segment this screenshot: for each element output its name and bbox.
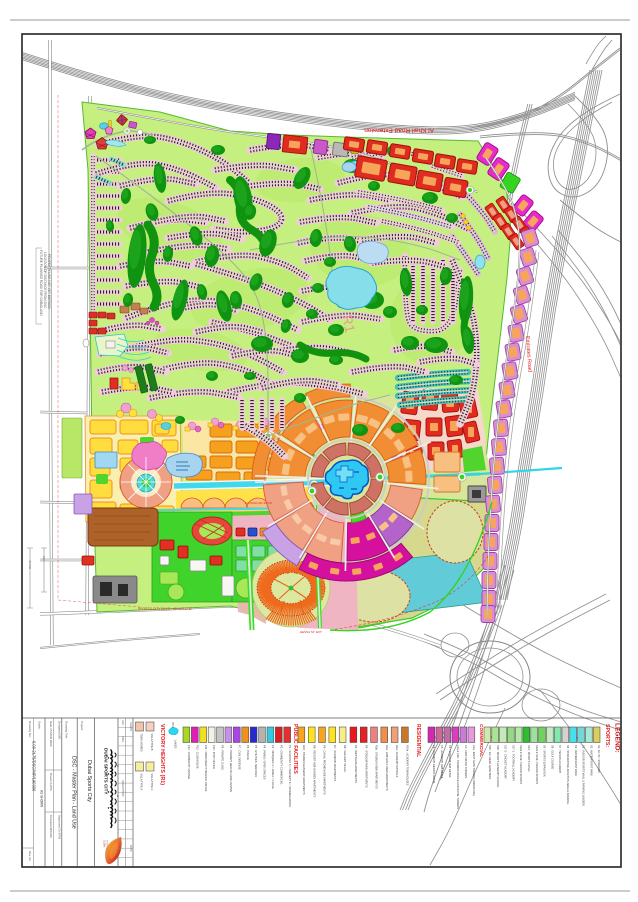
svg-text:P5 : UTILITIES, SERVICES: P5 : UTILITIES, SERVICES (254, 745, 258, 777)
svg-text:REV.: REV. (121, 720, 124, 726)
svg-text:2W: 2W (42, 556, 46, 561)
svg-text:S5 : WATERFRONT PARK: S5 : WATERFRONT PARK (589, 745, 593, 776)
svg-text:SPORTS CITY BLVD - 40 m R.O.W: SPORTS CITY BLVD - 40 m R.O.W (138, 607, 192, 611)
svg-text:Dubai Sports City: Dubai Sports City (86, 760, 92, 802)
svg-text:S1, S2, S4 : STADIUMS: S1, S2, S4 : STADIUMS (597, 745, 601, 773)
svg-text:R3b : STADIUM VIEW APARTMENTS: R3b : STADIUM VIEW APARTMENTS (375, 745, 379, 789)
svg-text:R10 : STADIUM GATEWAY APARTMEN: R10 : STADIUM GATEWAY APARTMENTS (302, 745, 306, 795)
svg-text:Rev. No: Rev. No (28, 851, 32, 861)
svg-text:Drawn AJ/SS: Drawn AJ/SS (49, 773, 53, 791)
svg-text:Date 15 MAR 2006: Date 15 MAR 2006 (49, 721, 53, 747)
svg-text:SH. ROAD 40m R.O.W: SH. ROAD 40m R.O.W (245, 501, 272, 505)
svg-text:R10a : ACADEMY TOWNHOUSES: R10a : ACADEMY TOWNHOUSES (406, 745, 410, 786)
svg-text:PUBLIC FACILITIES: PUBLIC FACILITIES (292, 724, 298, 774)
svg-text:S12a & S13b : INDOOR SPORTS: S12a & S13b : INDOOR SPORTS (535, 745, 539, 784)
svg-text:FUTURE PLANNED ROAD FOR DUBAIL: FUTURE PLANNED ROAD FOR DUBAILAND (39, 250, 43, 316)
svg-text:6.00-2175/DSC/MP/190306: 6.00-2175/DSC/MP/190306 (32, 741, 37, 792)
svg-text:C4 : STADIUM HUB RETAIL: C4 : STADIUM HUB RETAIL (448, 745, 452, 778)
svg-text:S9 : SPORTS EXPANSION: S9 : SPORTS EXPANSION (543, 745, 547, 777)
svg-text:S8 : GOLF COURSE: S8 : GOLF COURSE (550, 745, 554, 769)
svg-text:Scale:: Scale: (38, 721, 42, 730)
svg-text:S13a & S13b : INDOOR SPORTS: S13a & S13b : INDOOR SPORTS (519, 745, 523, 784)
svg-text:40 500: 40 500 (28, 560, 32, 570)
svg-text:P12 : CLUB HOUSE: P12 : CLUB HOUSE (195, 745, 199, 769)
svg-text:P6 : POLICE: P6 : POLICE (246, 745, 250, 760)
svg-text:P1 : SCHOOLS N = NURSERY K =: P1 : SCHOOLS N = NURSERY K = KINDERGARTE… (288, 745, 292, 807)
svg-text:R7 : ACADEMY APARTMENTS: R7 : ACADEMY APARTMENTS (333, 745, 337, 781)
svg-text:DRAWN: DRAWN (129, 722, 132, 731)
svg-text:Approved Dr BTM: Approved Dr BTM (58, 815, 62, 840)
svg-text:APPR.: APPR. (129, 845, 132, 853)
svg-text:DUBAI: DUBAI (103, 840, 106, 848)
svg-text:COMMERCIAL: COMMERCIAL (478, 724, 484, 757)
svg-text:P11 : MUNICIPALITY BRANCH OFFI: P11 : MUNICIPALITY BRANCH OFFICE (204, 745, 208, 792)
svg-text:VILLA TYPE B: VILLA TYPE B (150, 734, 154, 751)
svg-text:S3 : WATERFRONT PARK: S3 : WATERFRONT PARK (574, 745, 578, 776)
svg-text:RESIDENTIAL: RESIDENTIAL (415, 724, 421, 757)
svg-text:VICTORY HEIGHTS (R1): VICTORY HEIGHTS (R1) (159, 724, 165, 785)
svg-text:R8 : GALLERY VILLAS: R8 : GALLERY VILLAS (343, 745, 347, 772)
svg-text:S2 : INDOOR SPORTS WALL & PARK: S2 : INDOOR SPORTS WALL & PARKING (UNDER… (582, 745, 586, 806)
svg-text:DESCRIPTION: DESCRIPTION (121, 780, 124, 797)
svg-text:S7 : TENNIS ACADEMY: S7 : TENNIS ACADEMY (558, 745, 562, 773)
svg-text:SPORTS CITY: SPORTS CITY (106, 840, 108, 853)
svg-text:Checked MS/AM: Checked MS/AM (49, 815, 53, 838)
svg-text:LEGEND:: LEGEND: (614, 723, 621, 753)
svg-text:LAKES: LAKES (174, 740, 178, 749)
svg-text:DUBAI SPORTS CITY: DUBAI SPORTS CITY (104, 748, 109, 794)
svg-text:R3a : HUB GOLF VIEW APARTMENTS: R3a : HUB GOLF VIEW APARTMENTS (385, 745, 389, 791)
svg-text:VILLA TYPE A: VILLA TYPE A (140, 774, 144, 791)
svg-text:C2 : HUB OFFICE TOWERS: C2 : HUB OFFICE TOWERS (464, 745, 468, 778)
svg-text:C5 : ACADEMY HUB RETAIL: C5 : ACADEMY HUB RETAIL (440, 745, 444, 779)
svg-text:VILLA TYPE C: VILLA TYPE C (150, 774, 154, 791)
svg-text:R4 : STADIUM PARK APARTMENTS: R4 : STADIUM PARK APARTMENTS (364, 745, 368, 788)
svg-text:P4 : PARKS / OPEN SPACES: P4 : PARKS / OPEN SPACES (263, 745, 267, 780)
svg-text:S18 : SPORTS ACADEMY SCHOOL: S18 : SPORTS ACADEMY SCHOOL (496, 745, 500, 788)
svg-text:S17-1 : FOOTBALL ACADEMY: S17-1 : FOOTBALL ACADEMY (511, 745, 515, 781)
svg-text:S17-2 : CRICKET ACADEMY: S17-2 : CRICKET ACADEMY (504, 745, 508, 779)
svg-text:SPORTS:: SPORTS: (604, 724, 610, 747)
svg-text:P13 : COMMUNITY CENTRE: P13 : COMMUNITY CENTRE (187, 745, 191, 779)
svg-text:LOCATION OR DISTANCE FROM DSC: LOCATION OR DISTANCE FROM DSC (43, 252, 47, 309)
svg-text:DSC - Master Plan - Land Use: DSC - Master Plan - Land Use (71, 756, 77, 829)
svg-text:Drawing No:: Drawing No: (28, 721, 32, 738)
svg-text:R5 : WESTGATE APARTMENTS: R5 : WESTGATE APARTMENTS (354, 745, 358, 783)
svg-text:S19 : ICC HEAD QUARTERS: S19 : ICC HEAD QUARTERS (488, 745, 492, 780)
svg-text:S14 : SPORTS CLINIC: S14 : SPORTS CLINIC (527, 745, 531, 772)
svg-text:P9 : PRIVATE CLINIC: P9 : PRIVATE CLINIC (221, 745, 225, 770)
svg-text:S6 : STADIUM PRE-FUNCTION AREA: S6 : STADIUM PRE-FUNCTION AREA & PARKING (566, 745, 570, 804)
svg-text:P10 : POST OFFICE: P10 : POST OFFICE (212, 745, 216, 769)
svg-text:C1a : WEST GATE TOWERS (MIXED: C1a : WEST GATE TOWERS (MIXED USE) (472, 745, 476, 796)
svg-text:PROPERTY LINE NOT YET DEFINED: PROPERTY LINE NOT YET DEFINED (47, 254, 51, 309)
svg-text:Designed MG: Designed MG (58, 721, 62, 740)
svg-text:Al Khail Road Extension: Al Khail Road Extension (364, 127, 434, 134)
svg-text:R6 : CANAL PROMENADE APARTMENT: R6 : CANAL PROMENADE APARTMENTS (323, 745, 327, 795)
svg-text:R2a : ACADEMY HOSTELS: R2a : ACADEMY HOSTELS (395, 745, 399, 778)
svg-text:Drawing Title: Drawing Title (65, 721, 69, 739)
svg-text:DATE: DATE (121, 736, 124, 743)
svg-text:Project: Project (80, 721, 84, 731)
svg-text:C6 : ACADEMY RESORT HOTEL: C6 : ACADEMY RESORT HOTEL (432, 745, 436, 784)
svg-text:C3a & C3b : STADIUM OFFICE AND: C3a & C3b : STADIUM OFFICE AND HOTEL TOW… (456, 745, 460, 809)
svg-text:AS SHOWN: AS SHOWN (40, 790, 44, 808)
svg-text:R8 : RESORT HUB GARDEN APARTME: R8 : RESORT HUB GARDEN APARTMENTS (312, 745, 316, 798)
svg-text:P3 : MOSQUES J = JUMA L = LO: P3 : MOSQUES J = JUMA L = LOCAL (271, 745, 275, 790)
svg-text:HESSA ST. EXT.: HESSA ST. EXT. (300, 630, 323, 634)
svg-text:TOWN HOMES: TOWN HOMES (140, 734, 144, 752)
svg-text:P8 : PRIMARY HEALTH CARE CENTR: P8 : PRIMARY HEALTH CARE CENTRE (229, 745, 233, 792)
svg-text:P2 : COMMUNITY COMMERCIAL: P2 : COMMUNITY COMMERCIAL (279, 745, 283, 785)
svg-text:P7 : CIVIL DEFENSE: P7 : CIVIL DEFENSE (237, 745, 241, 770)
